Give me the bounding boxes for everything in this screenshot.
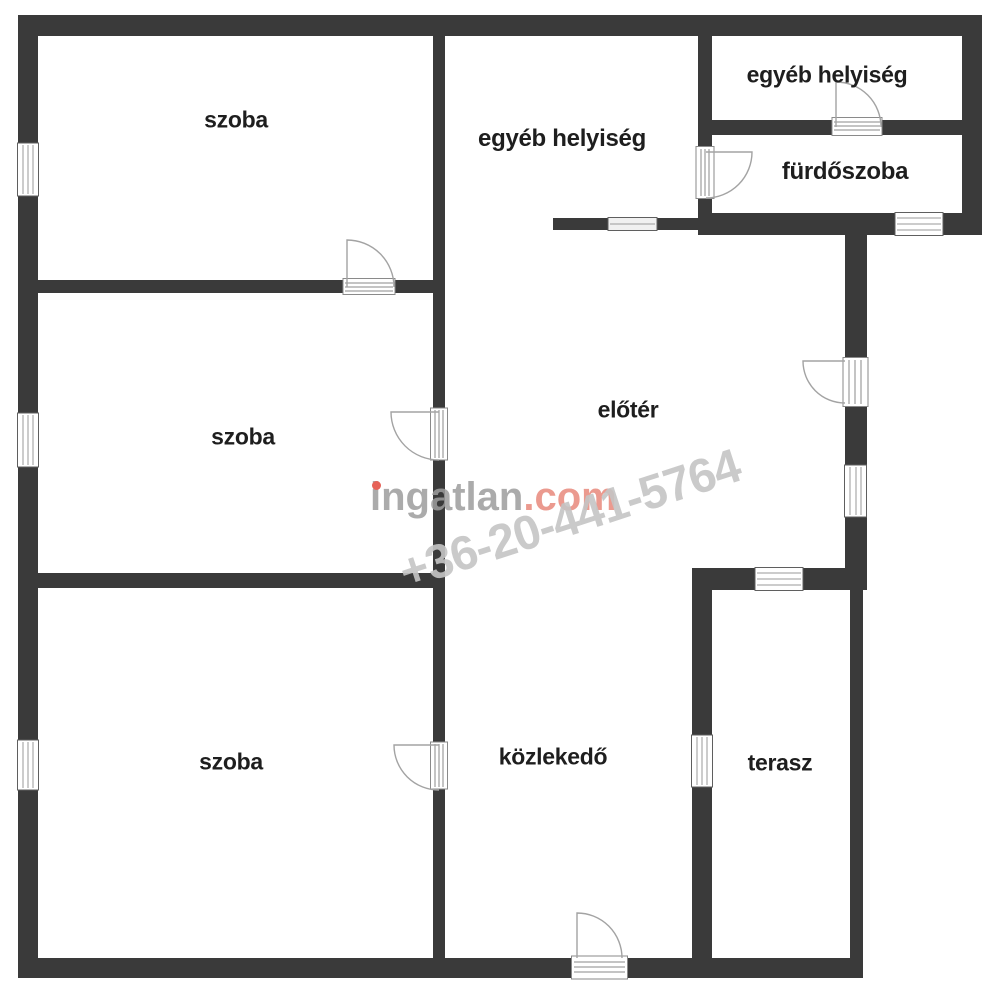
window-terasz-top [755,568,803,591]
room-label-terasz: terasz [748,750,813,777]
door-szoba-top [343,279,395,295]
door-szoba-middle [431,408,448,460]
room-label-egyeb-helyiseg-top: egyéb helyiség [478,125,646,153]
window-left-top [18,143,39,196]
door-furdoszoba [696,147,714,199]
room-label-szoba-bottom: szoba [199,749,263,776]
swing-kozlekedo [577,913,622,958]
room-label-szoba-middle: szoba [211,424,275,451]
door-kozlekedo-exit [572,956,628,979]
room-label-kozlekedo: közlekedő [499,744,608,771]
window-terasz-left [692,735,713,787]
room-label-szoba-top: szoba [204,107,268,134]
windows [18,143,944,790]
door-eloter-entry [843,358,868,407]
floorplan-canvas: szoba egyéb helyiség egyéb helyiség fürd… [0,0,1000,997]
door-szoba-bottom [431,742,448,789]
brand-dot-icon [372,481,381,490]
window-eloter-right [845,465,867,517]
window-left-middle [18,413,39,467]
door-egyeb-right [832,118,882,136]
watermark-brand-gray: ingatlan [370,475,523,519]
room-label-eloter: előtér [598,397,659,424]
room-label-furdoszoba: fürdőszoba [782,158,908,186]
room-label-egyeb-helyiseg-right: egyéb helyiség [747,62,908,89]
swing-eloter-entry [803,361,845,403]
window-furdoszoba-bottom [895,213,943,236]
window-left-bottom [18,740,39,790]
window-eloter-partition [608,218,657,231]
